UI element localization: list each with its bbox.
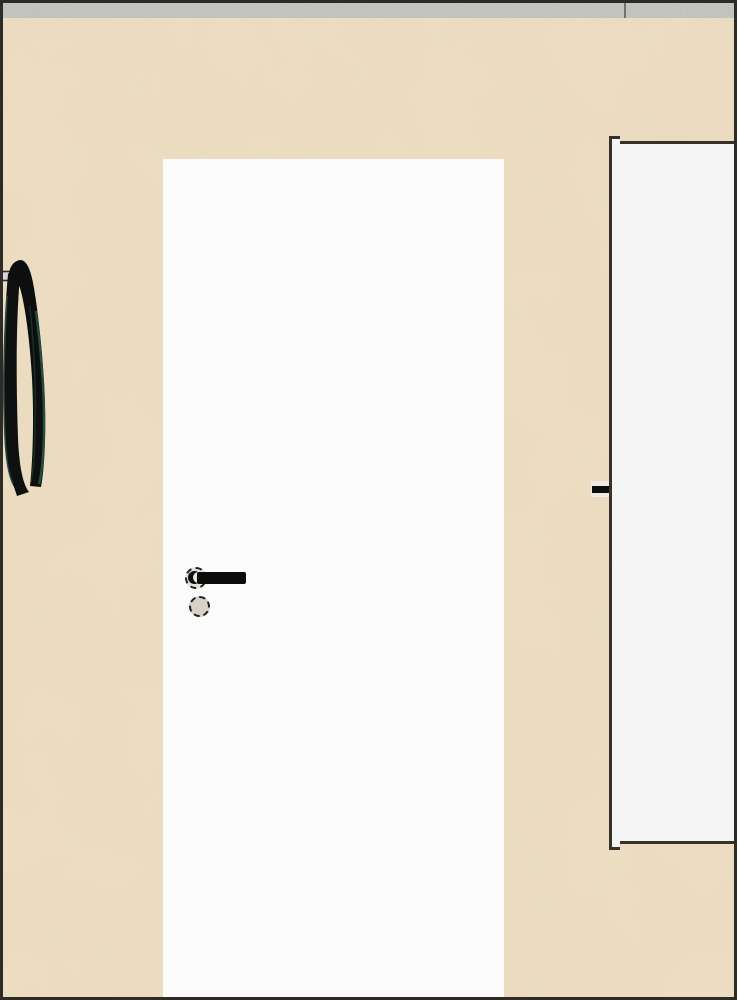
floor-speckle — [0, 0, 737, 18]
room-scene — [0, 0, 737, 1000]
side-panel-frame-notch-top — [609, 136, 620, 145]
door-handle-lever[interactable] — [197, 572, 246, 584]
hanging-strap[interactable] — [0, 256, 56, 502]
side-panel-handle[interactable] — [592, 486, 609, 493]
floor-seam-line — [624, 0, 626, 18]
side-panel[interactable] — [609, 141, 737, 844]
side-panel-frame-notch-bottom — [609, 840, 620, 850]
door-keyhole-rosette[interactable] — [189, 596, 210, 617]
floor — [0, 0, 737, 18]
